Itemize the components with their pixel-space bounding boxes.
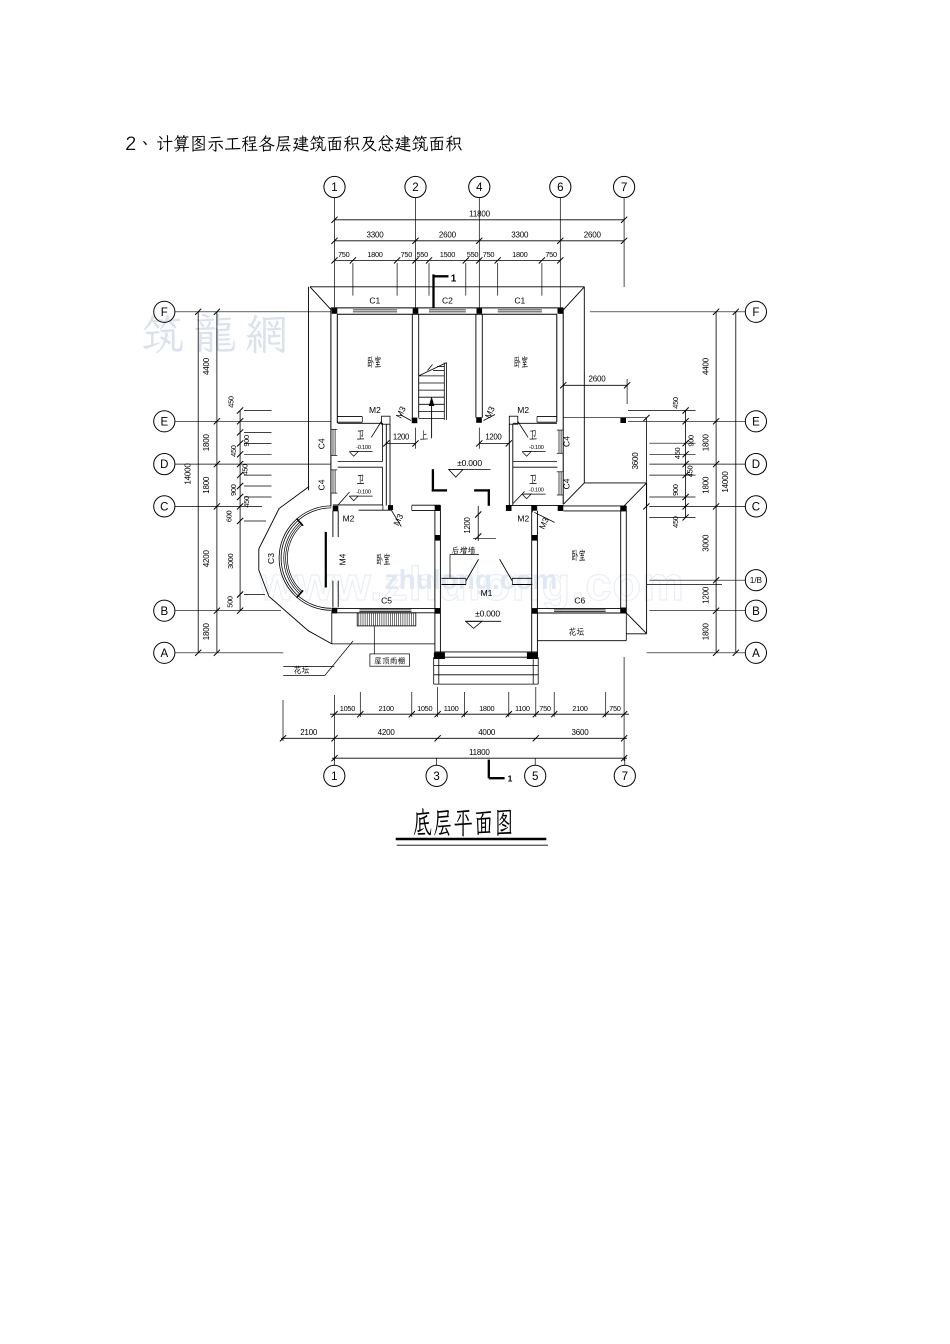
svg-text:4200: 4200 — [202, 549, 211, 567]
svg-text:C4: C4 — [317, 438, 327, 449]
svg-text:3000: 3000 — [701, 534, 710, 552]
svg-text:1200: 1200 — [485, 432, 502, 441]
svg-text:450: 450 — [242, 496, 251, 508]
svg-text:M2: M2 — [369, 405, 381, 415]
svg-text:2100: 2100 — [300, 728, 318, 737]
svg-text:M2: M2 — [343, 514, 355, 524]
svg-text:600: 600 — [225, 510, 234, 522]
svg-text:4000: 4000 — [478, 728, 496, 737]
svg-text:3: 3 — [433, 771, 439, 783]
svg-text:1800: 1800 — [202, 433, 211, 451]
svg-text:2100: 2100 — [572, 704, 587, 713]
svg-text:1200: 1200 — [701, 586, 710, 604]
svg-text:1800: 1800 — [202, 476, 211, 494]
svg-text:A: A — [752, 648, 760, 660]
svg-text:7: 7 — [621, 182, 627, 194]
svg-text:1: 1 — [451, 274, 457, 285]
svg-text:±0.000: ±0.000 — [475, 609, 500, 619]
svg-text:3600: 3600 — [631, 452, 640, 470]
svg-text:750: 750 — [609, 704, 621, 713]
svg-text:14000: 14000 — [721, 471, 730, 493]
svg-text:1800: 1800 — [701, 433, 710, 451]
svg-text:F: F — [752, 307, 759, 319]
svg-text:1100: 1100 — [444, 704, 459, 713]
svg-text:C2: C2 — [442, 296, 453, 306]
svg-text:500: 500 — [225, 596, 234, 608]
svg-text:4400: 4400 — [202, 357, 211, 375]
svg-text:7: 7 — [622, 771, 628, 783]
svg-text:1500: 1500 — [440, 250, 455, 259]
svg-text:2100: 2100 — [378, 704, 393, 713]
svg-text:C4: C4 — [561, 478, 571, 489]
svg-text:3300: 3300 — [511, 230, 529, 239]
svg-text:4400: 4400 — [701, 357, 710, 375]
svg-text:-0.100: -0.100 — [356, 489, 371, 495]
svg-text:E: E — [160, 416, 168, 428]
svg-text:750: 750 — [545, 250, 557, 259]
svg-text:1100: 1100 — [515, 704, 530, 713]
svg-text:4: 4 — [476, 182, 483, 194]
svg-text:750: 750 — [483, 250, 495, 259]
svg-text:±0.000: ±0.000 — [457, 458, 482, 468]
svg-text:-0.100: -0.100 — [356, 445, 371, 451]
svg-text:1800: 1800 — [701, 476, 710, 494]
svg-text:11800: 11800 — [469, 210, 490, 219]
svg-text:900: 900 — [687, 435, 696, 447]
svg-text:1800: 1800 — [701, 622, 710, 640]
svg-text:3600: 3600 — [572, 728, 590, 737]
svg-text:450: 450 — [671, 516, 680, 528]
svg-text:B: B — [160, 606, 168, 618]
svg-text:2: 2 — [412, 182, 418, 194]
svg-text:M2: M2 — [517, 513, 529, 523]
svg-text:2600: 2600 — [439, 230, 457, 239]
svg-text:1200: 1200 — [463, 516, 472, 533]
svg-text:1/B: 1/B — [750, 576, 762, 585]
svg-text:1800: 1800 — [479, 704, 494, 713]
svg-text:C4: C4 — [561, 436, 571, 447]
svg-text:M1: M1 — [481, 588, 493, 598]
svg-text:M2: M2 — [517, 405, 529, 415]
svg-text:1: 1 — [331, 771, 337, 783]
svg-text:450: 450 — [241, 464, 250, 476]
svg-text:F: F — [161, 307, 168, 319]
svg-text:1800: 1800 — [512, 250, 527, 259]
svg-text:450: 450 — [227, 396, 236, 408]
svg-text:550: 550 — [416, 250, 428, 259]
svg-text:900: 900 — [229, 484, 238, 496]
svg-text:-0.100: -0.100 — [529, 445, 544, 451]
svg-text:C1: C1 — [514, 296, 525, 306]
svg-text:A: A — [160, 648, 168, 660]
svg-text:2600: 2600 — [584, 230, 602, 239]
svg-text:D: D — [160, 459, 168, 471]
svg-text:5: 5 — [532, 771, 538, 783]
svg-text:450: 450 — [229, 445, 238, 457]
svg-text:C6: C6 — [574, 595, 585, 605]
svg-text:-0.100: -0.100 — [529, 487, 544, 493]
svg-text:1: 1 — [331, 182, 337, 194]
svg-text:900: 900 — [242, 435, 251, 447]
svg-text:6: 6 — [557, 182, 563, 194]
svg-text:1050: 1050 — [417, 704, 432, 713]
svg-text:3000: 3000 — [226, 553, 235, 568]
svg-text:450: 450 — [671, 397, 680, 409]
svg-text:1200: 1200 — [393, 432, 410, 441]
svg-text:900: 900 — [671, 484, 680, 496]
svg-text:2600: 2600 — [589, 374, 607, 383]
svg-text:3300: 3300 — [367, 230, 385, 239]
svg-text:C3: C3 — [266, 553, 276, 564]
svg-text:C5: C5 — [381, 596, 392, 606]
svg-text:11800: 11800 — [469, 748, 490, 757]
svg-text:E: E — [752, 416, 760, 428]
svg-text:C1: C1 — [369, 296, 380, 306]
svg-text:14000: 14000 — [183, 463, 192, 485]
svg-text:4200: 4200 — [378, 728, 396, 737]
svg-text:B: B — [752, 606, 760, 618]
svg-text:450: 450 — [673, 447, 682, 459]
svg-text:1800: 1800 — [367, 250, 382, 259]
svg-text:C: C — [160, 502, 168, 514]
svg-text:1: 1 — [508, 774, 513, 784]
svg-text:750: 750 — [539, 704, 551, 713]
svg-text:550: 550 — [467, 250, 479, 259]
svg-text:1050: 1050 — [340, 704, 355, 713]
svg-text:1800: 1800 — [202, 622, 211, 640]
svg-text:C: C — [752, 502, 760, 514]
svg-text:750: 750 — [338, 250, 350, 259]
svg-text:C4: C4 — [317, 479, 327, 490]
svg-text:M4: M4 — [338, 553, 348, 565]
svg-text:750: 750 — [401, 250, 413, 259]
svg-text:D: D — [752, 459, 760, 471]
